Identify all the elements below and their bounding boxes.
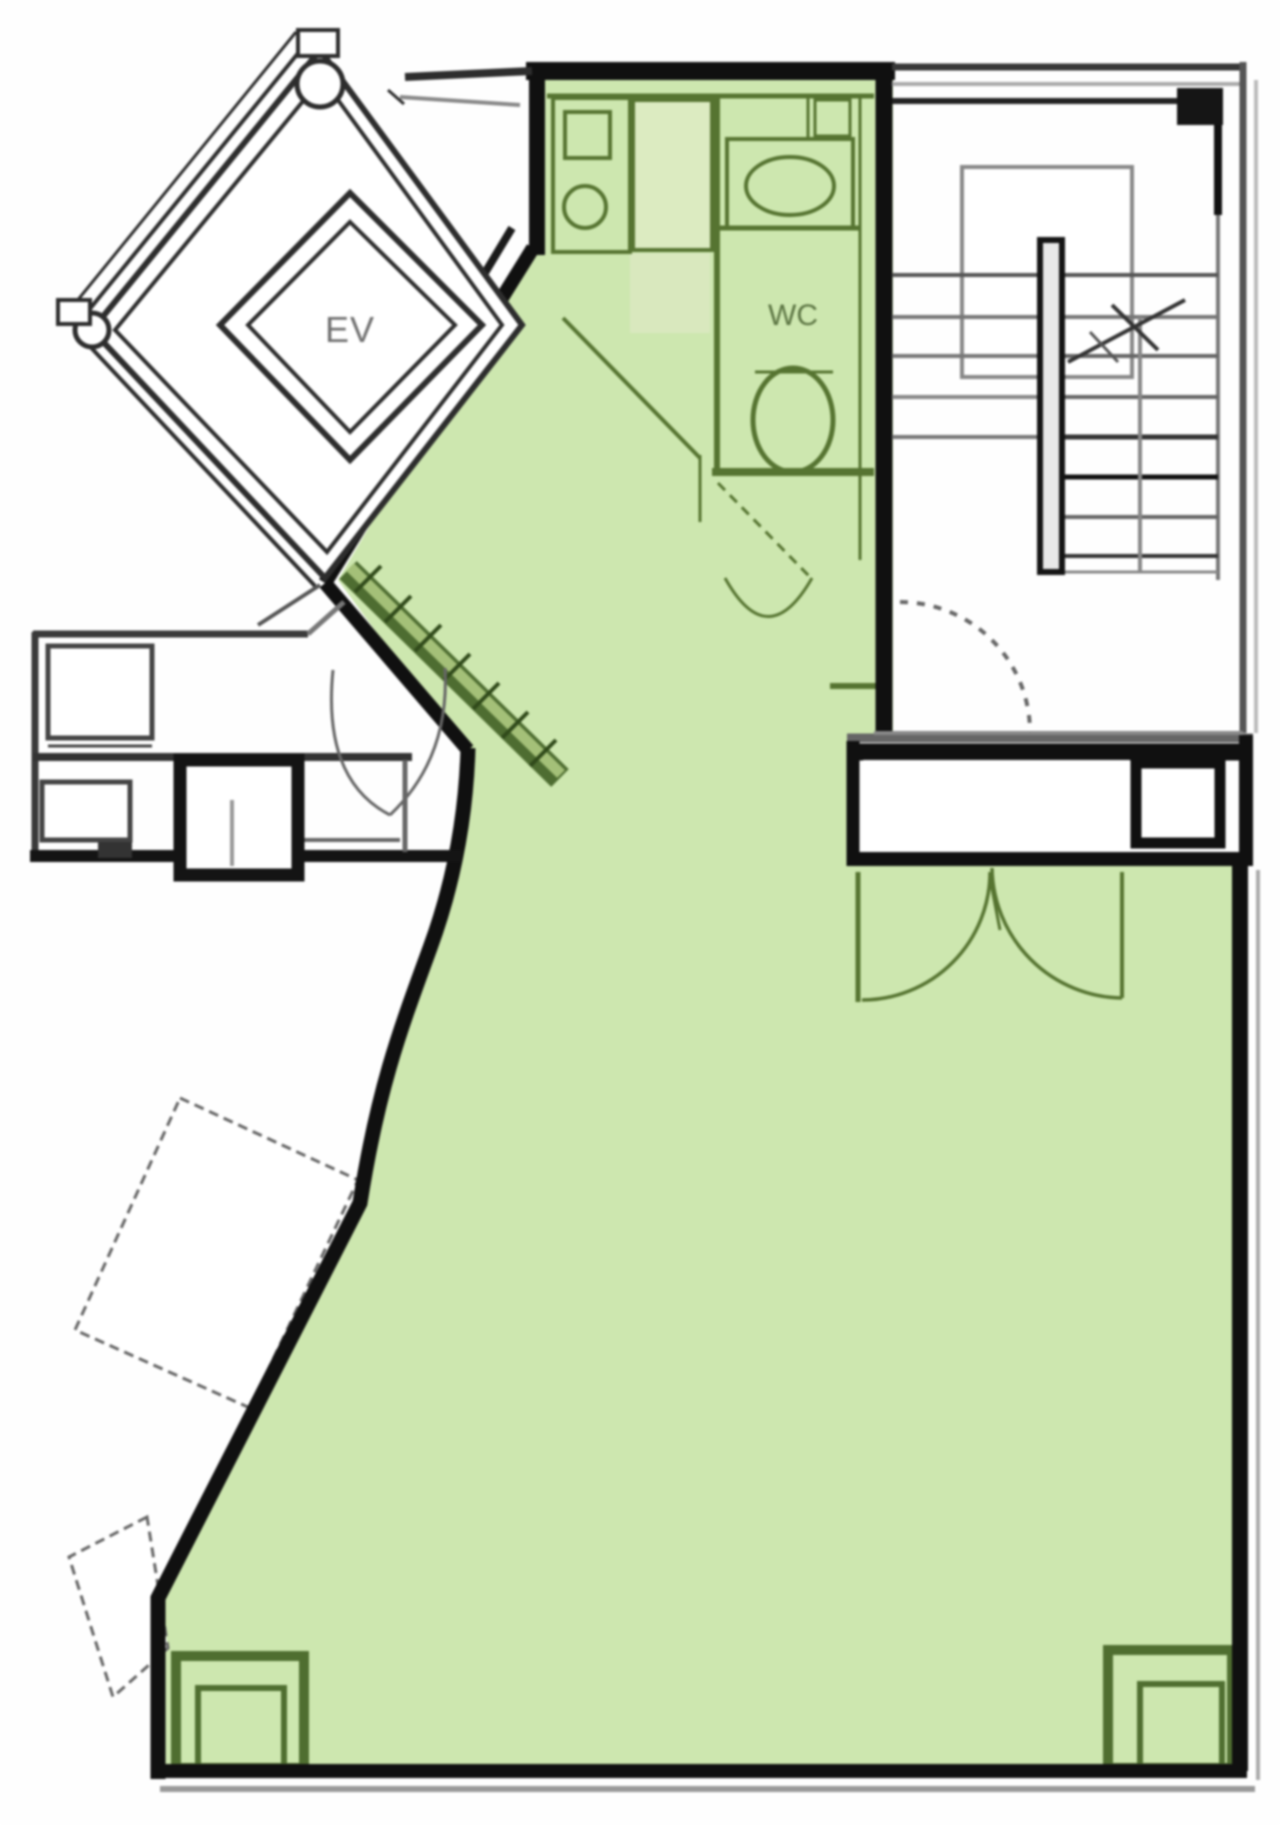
svg-text:EV: EV bbox=[325, 309, 375, 350]
svg-text:WC: WC bbox=[768, 299, 818, 332]
